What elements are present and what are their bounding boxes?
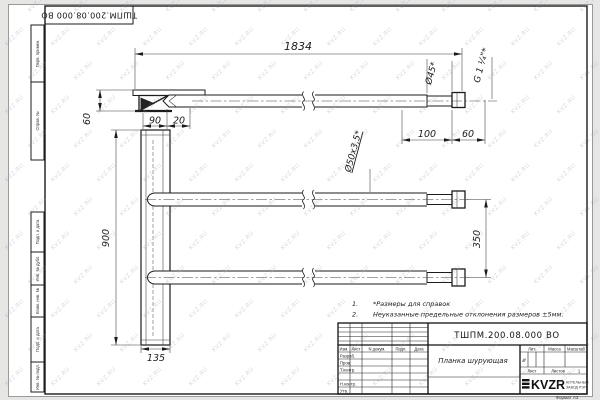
prop-massa-label: Масса	[548, 347, 561, 352]
prop-lit-value: И	[522, 358, 526, 364]
prop-sheets-value: 1	[578, 368, 581, 373]
margin-labels: Перв. примен. Справ. № Подп. и дата Инв.…	[35, 40, 40, 390]
dim-plate-height: 900	[101, 229, 112, 247]
col-header-izm: Изм.	[340, 347, 349, 352]
col-header-data: Дата	[414, 347, 424, 352]
drawing-canvas: ТШПМ.200.08.000 ВО Перв. примен. Справ. …	[0, 0, 600, 400]
dim-total-length: 1834	[284, 40, 312, 53]
tube-upper	[145, 190, 468, 209]
margin-label-vzam-inv: Взам. инв. №	[35, 288, 40, 314]
tube-lower	[145, 268, 468, 287]
dim-offset-90: 90	[149, 116, 161, 127]
prop-sheet-label: Лист	[527, 368, 536, 373]
margin-label-inv-dubl: Инв. № дубл.	[35, 256, 40, 282]
side-view	[133, 90, 497, 111]
dim-thread-length: 60	[462, 129, 474, 140]
dim-thread-spec: G 1 ¼"*	[473, 46, 492, 84]
col-header-ndoc: N докум.	[369, 347, 386, 352]
dim-end-diameter: Ø45*	[423, 60, 440, 87]
prop-lit-label: Лит.	[528, 347, 536, 352]
company-logo-text: KVZR	[531, 378, 565, 392]
titleblock-part-name: Планка шурующая	[438, 357, 507, 365]
sign-row-utv: Утв.	[340, 389, 348, 394]
dim-offset-20: 20	[173, 116, 185, 127]
prop-scale-label: Масштаб	[567, 347, 586, 352]
sign-row-nkontr: Н.контр.	[340, 382, 356, 387]
note-1-text: *Размеры для справок	[373, 300, 450, 308]
format-note: Формат А3	[556, 395, 579, 400]
margin-label-podp-data-2: Подп. и дата	[35, 326, 40, 351]
dim-end-length: 100	[418, 129, 436, 140]
sign-row-prov: Пров.	[340, 361, 351, 366]
titleblock-doc-number: ТШПМ.200.08.000 ВО	[453, 331, 559, 341]
col-header-podp: Подп.	[395, 347, 406, 352]
company-name-line2: ЗАВОД РЭП	[566, 386, 587, 390]
note-2-num: 2.	[352, 311, 358, 319]
margin-label-inv-podl: Инв. № подл.	[35, 364, 40, 390]
company-name-line1: КОТЕЛЬНЫЙ	[566, 381, 589, 385]
margin-label-sprav-no: Справ. №	[35, 111, 40, 131]
sign-row-tkontr: Т.контр.	[340, 368, 355, 373]
dim-tube-spec: Ø50x3,5*	[342, 129, 364, 175]
margin-label-perv-primen: Перв. примен.	[35, 40, 40, 68]
sign-row-razrab: Разраб.	[340, 354, 355, 359]
prop-sheets-label: Листов	[551, 368, 565, 373]
dim-tube-spacing: 350	[472, 230, 483, 248]
dim-plate-width: 135	[147, 353, 165, 364]
drawing-page: ТШПМ.200.08.000 ВО Перв. примен. Справ. …	[0, 0, 600, 400]
title-block: ТШПМ.200.08.000 ВО Планка шурующая Изм. …	[338, 323, 589, 394]
note-1-num: 1.	[352, 300, 358, 308]
top-doc-number: ТШПМ.200.08.000 ВО	[41, 11, 138, 20]
dim-flange-height: 60	[82, 113, 93, 125]
note-2-text: Неуказанные предельные отклонения размер…	[373, 311, 564, 319]
notes: 1. *Размеры для справок 2. Неуказанные п…	[352, 300, 564, 319]
col-header-list: Лист	[351, 347, 360, 352]
company-logo-icon	[522, 379, 530, 389]
margin-label-podp-data-1: Подп. и дата	[35, 219, 40, 244]
